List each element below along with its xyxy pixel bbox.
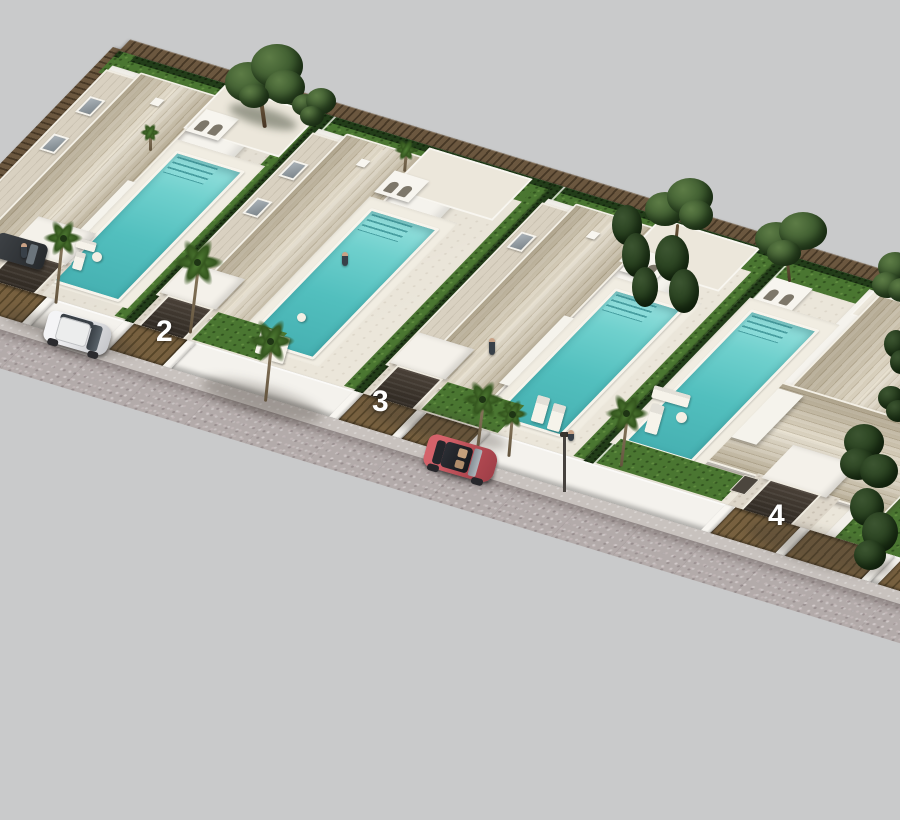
- pergola-arch: [763, 289, 781, 302]
- pergola-arch: [207, 123, 225, 136]
- pergola-arch: [396, 185, 414, 198]
- pool-steps: [737, 315, 792, 343]
- patio-table: [92, 252, 102, 262]
- lamp-pole: [563, 436, 566, 492]
- pool-steps: [163, 156, 218, 184]
- person: [21, 243, 27, 258]
- person: [489, 338, 495, 355]
- person: [342, 252, 348, 266]
- estate-plane: [0, 0, 900, 820]
- patio-table: [297, 313, 306, 322]
- pergola-arch: [778, 293, 796, 306]
- plot-number-4: 4: [768, 501, 785, 531]
- plot-number-2: 2: [156, 317, 173, 347]
- plot-number-3: 3: [372, 387, 389, 417]
- render-canvas: { "scene": { "title": "New-build villa d…: [0, 0, 900, 600]
- pool-steps: [357, 214, 412, 242]
- person: [568, 430, 574, 441]
- coffee-table: [676, 412, 687, 423]
